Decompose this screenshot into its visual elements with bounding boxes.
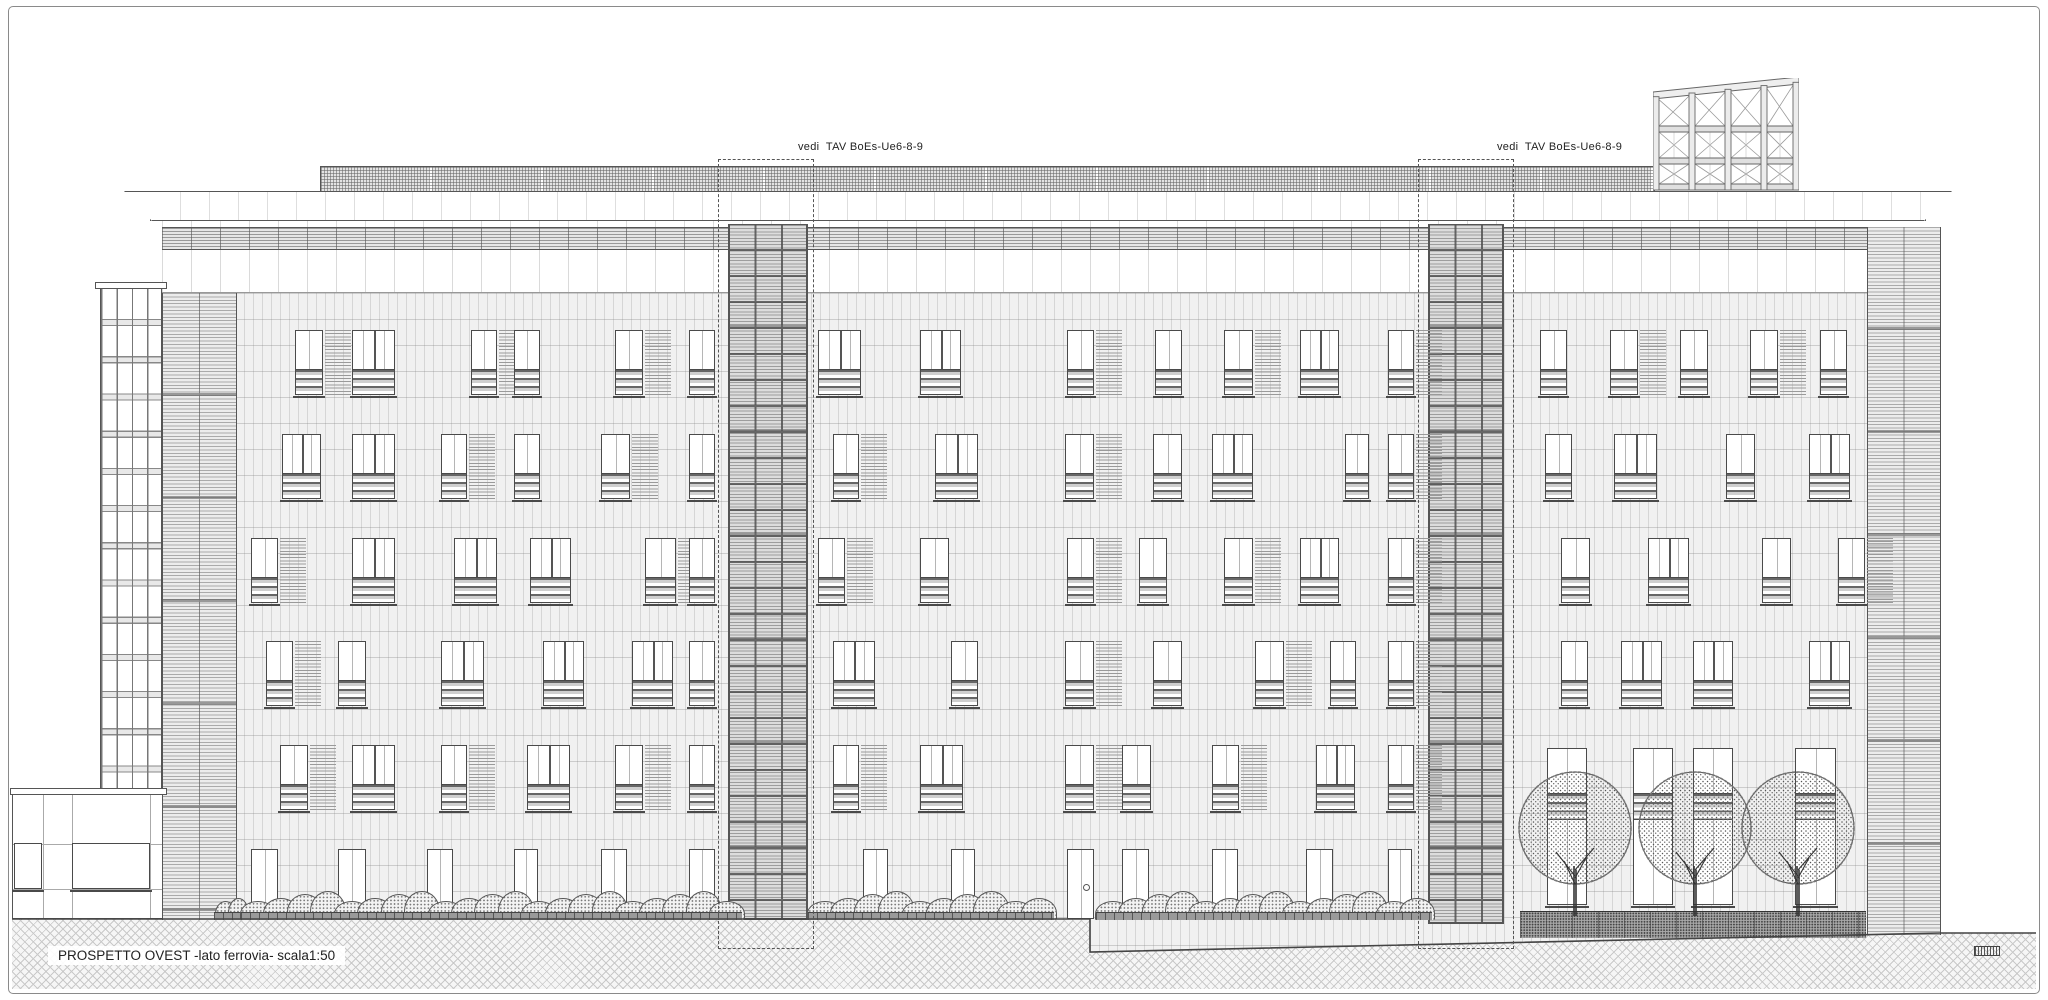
window-side-louver-panel: [1096, 330, 1122, 395]
window: [689, 330, 715, 395]
window-side-louver-panel: [325, 330, 351, 395]
window-mullion: [1226, 746, 1227, 787]
window-mullion: [1329, 539, 1330, 580]
window-louver: [1317, 784, 1354, 809]
window-mullion: [1625, 435, 1626, 476]
window: [1065, 641, 1094, 706]
window-louver: [442, 473, 466, 498]
window-mullion: [374, 746, 376, 787]
window: [352, 538, 395, 603]
window-louver: [1389, 369, 1413, 394]
window-louver: [1681, 369, 1707, 394]
window: [1762, 538, 1791, 603]
window-mullion: [484, 331, 485, 372]
window-louver: [819, 369, 860, 394]
window-louver: [442, 680, 483, 705]
window-mullion: [1401, 435, 1402, 476]
window: [1122, 745, 1151, 810]
window-mullion: [1830, 435, 1832, 476]
window: [689, 745, 715, 810]
window: [1820, 330, 1847, 395]
window-mullion: [832, 539, 833, 580]
window-louver: [616, 369, 642, 394]
window: [645, 538, 676, 603]
window: [1153, 641, 1182, 706]
roof-fascia-left-tip: [124, 191, 152, 221]
window-mullion: [473, 642, 474, 683]
window-louver: [1389, 680, 1413, 705]
window-side-louver-panel: [1286, 641, 1312, 706]
rooftop-glazed-structure: [1653, 78, 1799, 192]
window: [833, 641, 875, 706]
window-mullion: [662, 642, 663, 683]
window-mullion: [352, 642, 353, 683]
left-corner-louver-strip: [162, 293, 237, 920]
window-mullion: [1401, 642, 1402, 683]
window-mullion: [850, 331, 851, 372]
window-side-louver-panel: [645, 330, 671, 395]
window: [935, 434, 978, 499]
window-mullion: [1242, 435, 1243, 476]
window-mullion: [629, 331, 630, 372]
window-louver: [544, 680, 583, 705]
window: [1388, 330, 1414, 395]
window-mullion: [844, 642, 845, 683]
window-louver: [1751, 369, 1777, 394]
window-louver: [646, 577, 675, 602]
window-mullion: [549, 746, 551, 787]
window: [1300, 330, 1339, 395]
window-mullion: [1834, 331, 1835, 372]
tree: [1510, 758, 1640, 918]
window-mullion: [363, 435, 364, 476]
window-mullion: [265, 539, 266, 580]
window-mullion: [1168, 642, 1169, 683]
window-side-louver-panel: [1241, 745, 1267, 810]
window-mullion: [643, 642, 644, 683]
window-louver: [1213, 473, 1252, 498]
window: [266, 641, 293, 706]
window-side-louver-panel: [1867, 538, 1893, 603]
window-mullion: [1741, 435, 1742, 476]
window-louver: [515, 369, 539, 394]
window: [1224, 330, 1253, 395]
door-mullion: [1081, 850, 1082, 918]
window-louver: [1839, 577, 1864, 602]
shrub-planter-strip: [808, 912, 1054, 920]
window-mullion: [1723, 642, 1724, 683]
window-mullion: [702, 331, 703, 372]
window-side-louver-panel: [1255, 330, 1281, 395]
window-louver: [1763, 577, 1790, 602]
window-louver: [1821, 369, 1846, 394]
window: [471, 330, 497, 395]
window-mullion: [1764, 331, 1765, 372]
window: [1750, 330, 1778, 395]
window-louver: [1622, 680, 1661, 705]
window-mullion: [931, 746, 932, 787]
window-mullion: [702, 746, 703, 787]
window-mullion: [1401, 746, 1402, 787]
window-mullion: [1713, 642, 1715, 683]
window: [1067, 330, 1094, 395]
window-louver: [1068, 577, 1093, 602]
window: [1139, 538, 1167, 603]
low-building-window: [72, 843, 150, 889]
window-side-louver-panel: [861, 745, 887, 810]
window: [352, 330, 395, 395]
window-mullion: [702, 642, 703, 683]
window-louver: [834, 784, 858, 809]
window: [441, 745, 467, 810]
window-mullion: [309, 331, 310, 372]
window-louver: [1256, 680, 1283, 705]
window-louver: [921, 369, 960, 394]
window-mullion: [864, 642, 865, 683]
window-mullion: [1852, 539, 1853, 580]
window-mullion: [454, 746, 455, 787]
window-mullion: [280, 642, 281, 683]
window-louver: [819, 577, 844, 602]
window-mullion: [1137, 746, 1138, 787]
window-louver: [1154, 680, 1181, 705]
window-mullion: [1659, 539, 1660, 580]
window-mullion: [965, 642, 966, 683]
window: [689, 538, 715, 603]
window-mullion: [559, 746, 560, 787]
window-louver: [690, 473, 714, 498]
window-mullion: [1336, 746, 1338, 787]
window-mullion: [1168, 435, 1169, 476]
window-louver: [602, 473, 629, 498]
window-mullion: [554, 642, 555, 683]
window-louver: [1810, 680, 1849, 705]
window: [1330, 641, 1356, 706]
window-mullion: [527, 435, 528, 476]
window-mullion: [463, 642, 465, 683]
window-mullion: [829, 331, 830, 372]
window-mullion: [957, 435, 959, 476]
window-mullion: [454, 435, 455, 476]
window-louver: [1225, 369, 1252, 394]
window: [1809, 641, 1850, 706]
window-louver: [1546, 473, 1571, 498]
window-mullion: [1678, 539, 1679, 580]
roof-fascia-right-tip: [1924, 191, 1952, 221]
window-louver: [1389, 784, 1413, 809]
detail-reference-label-right: vedi TAV BoEs-Ue6-8-9: [1497, 141, 1622, 153]
window-mullion: [541, 539, 542, 580]
window: [352, 434, 395, 499]
window-mullion: [1651, 642, 1652, 683]
window-louver: [633, 680, 672, 705]
window-louver: [267, 680, 292, 705]
window: [1155, 330, 1182, 395]
window-louver: [1389, 577, 1413, 602]
detail-reference-box: [1418, 159, 1514, 949]
window-mullion: [292, 435, 293, 476]
window-louver: [1694, 680, 1732, 705]
window-louver: [1346, 473, 1368, 498]
window: [282, 434, 321, 499]
low-building-window: [14, 843, 42, 889]
window-louver: [834, 680, 874, 705]
window-mullion: [1820, 642, 1821, 683]
window-louver: [690, 577, 714, 602]
window-louver: [1066, 473, 1093, 498]
window: [689, 641, 715, 706]
window-mullion: [538, 746, 539, 787]
window-louver: [353, 577, 394, 602]
window: [1388, 745, 1414, 810]
window-mullion: [1310, 331, 1311, 372]
window-side-louver-panel: [1096, 745, 1122, 810]
window: [920, 745, 963, 810]
window: [1621, 641, 1662, 706]
glazed-entrance-door: [1067, 849, 1094, 919]
window: [1838, 538, 1865, 603]
window-louver: [252, 577, 277, 602]
low-building-roof-slab: [10, 788, 167, 795]
window-mullion: [1270, 642, 1271, 683]
window-mullion: [311, 435, 312, 476]
window-mullion: [374, 435, 376, 476]
window: [441, 434, 467, 499]
window-mullion: [1345, 746, 1346, 787]
window-side-louver-panel: [295, 641, 321, 706]
window: [615, 745, 643, 810]
window-mullion: [935, 539, 936, 580]
window-louver: [1611, 369, 1637, 394]
window: [1561, 538, 1590, 603]
window-louver: [1123, 784, 1150, 809]
window: [441, 641, 484, 706]
window-mullion: [946, 435, 947, 476]
window: [1255, 641, 1284, 706]
window-louver: [1066, 784, 1093, 809]
window-louver: [1562, 680, 1587, 705]
window-mullion: [846, 746, 847, 787]
window: [1540, 330, 1567, 395]
window-mullion: [384, 435, 385, 476]
window: [833, 745, 859, 810]
window-mullion: [1839, 435, 1840, 476]
window: [1212, 434, 1253, 499]
window-louver: [353, 369, 394, 394]
window-mullion: [1357, 435, 1358, 476]
window: [1300, 538, 1339, 603]
detail-reference-label-left: vedi TAV BoEs-Ue6-8-9: [798, 141, 923, 153]
window-mullion: [942, 746, 944, 787]
window-mullion: [527, 331, 528, 372]
window-mullion: [363, 539, 364, 580]
window: [1726, 434, 1755, 499]
window-louver: [921, 577, 948, 602]
window: [527, 745, 570, 810]
window: [338, 641, 366, 706]
window: [1065, 434, 1094, 499]
elevation-drawing-sheet: vedi TAV BoEs-Ue6-8-9 vedi TAV BoEs-Ue6-…: [0, 0, 2048, 1000]
window-side-louver-panel: [310, 745, 336, 810]
window-mullion: [1624, 331, 1625, 372]
window: [920, 330, 961, 395]
window-mullion: [1169, 331, 1170, 372]
window-mullion: [967, 435, 968, 476]
window: [543, 641, 584, 706]
window-louver: [1727, 473, 1754, 498]
window-mullion: [840, 331, 842, 372]
window-louver: [1140, 577, 1166, 602]
shrub-planter-strip: [1096, 912, 1432, 920]
window-mullion: [1223, 435, 1224, 476]
window-louver: [690, 369, 714, 394]
window-mullion: [384, 746, 385, 787]
window-mullion: [1080, 435, 1081, 476]
window: [1316, 745, 1355, 810]
window-mullion: [1694, 331, 1695, 372]
window-side-louver-panel: [861, 434, 887, 499]
window-mullion: [465, 539, 466, 580]
roof-fascia: [150, 191, 1926, 221]
window: [251, 538, 278, 603]
window-side-louver-panel: [1640, 330, 1666, 395]
window-mullion: [1401, 331, 1402, 372]
window-mullion: [1830, 642, 1832, 683]
tree: [1733, 758, 1863, 918]
window: [951, 641, 978, 706]
section-marker-block: [1974, 946, 2000, 956]
window: [1212, 745, 1239, 810]
window-mullion: [1554, 331, 1555, 372]
window-mullion: [1239, 539, 1240, 580]
window-side-louver-panel: [469, 434, 495, 499]
window-mullion: [573, 642, 574, 683]
window-mullion: [1153, 539, 1154, 580]
window-louver: [1615, 473, 1656, 498]
window-louver: [472, 369, 496, 394]
window-mullion: [1081, 539, 1082, 580]
window-louver: [1810, 473, 1849, 498]
window-side-louver-panel: [280, 538, 306, 603]
window: [1388, 434, 1414, 499]
window-louver: [339, 680, 365, 705]
window-mullion: [1401, 539, 1402, 580]
window-mullion: [1839, 642, 1840, 683]
window-louver: [296, 369, 322, 394]
window: [632, 641, 673, 706]
window-mullion: [374, 539, 376, 580]
window: [1693, 641, 1733, 706]
window: [601, 434, 630, 499]
window-louver: [531, 577, 570, 602]
window: [1388, 538, 1414, 603]
window-mullion: [1777, 539, 1778, 580]
window-mullion: [1320, 539, 1322, 580]
window: [1614, 434, 1657, 499]
window: [1153, 434, 1182, 499]
window-mullion: [653, 642, 655, 683]
glazed-stair-tower: [100, 288, 162, 790]
window-mullion: [363, 746, 364, 787]
window: [1067, 538, 1094, 603]
window-mullion: [1575, 642, 1576, 683]
window: [530, 538, 571, 603]
window-mullion: [384, 539, 385, 580]
window: [1809, 434, 1850, 499]
window-mullion: [952, 746, 953, 787]
window: [920, 538, 949, 603]
window: [615, 330, 643, 395]
window-mullion: [302, 435, 304, 476]
window-louver: [1154, 473, 1181, 498]
window: [818, 330, 861, 395]
window-mullion: [1820, 435, 1821, 476]
window-mullion: [846, 435, 847, 476]
window: [1065, 745, 1094, 810]
window-mullion: [1632, 642, 1633, 683]
window: [818, 538, 845, 603]
window-mullion: [564, 642, 566, 683]
window-louver: [1066, 680, 1093, 705]
window-mullion: [1233, 435, 1235, 476]
window-mullion: [702, 539, 703, 580]
window-louver: [690, 784, 714, 809]
detail-reference-box: [718, 159, 814, 949]
window: [295, 330, 323, 395]
window: [1680, 330, 1708, 395]
window-side-louver-panel: [469, 745, 495, 810]
top-louver-band: [162, 227, 1867, 250]
window-mullion: [1559, 435, 1560, 476]
window-louver: [1225, 577, 1252, 602]
window-mullion: [476, 539, 478, 580]
window: [1224, 538, 1253, 603]
window: [1610, 330, 1638, 395]
window-mullion: [1636, 435, 1638, 476]
window-mullion: [1310, 539, 1311, 580]
window-mullion: [363, 331, 364, 372]
window: [689, 434, 715, 499]
window-side-louver-panel: [847, 538, 873, 603]
window-side-louver-panel: [1096, 434, 1122, 499]
window-mullion: [374, 331, 376, 372]
window-mullion: [931, 331, 932, 372]
window-mullion: [560, 539, 561, 580]
window: [280, 745, 308, 810]
window: [1648, 538, 1689, 603]
window-mullion: [661, 539, 662, 580]
window-louver: [1156, 369, 1181, 394]
window-mullion: [616, 435, 617, 476]
window-louver: [353, 784, 394, 809]
window-louver: [952, 680, 977, 705]
window-louver: [442, 784, 466, 809]
window-side-louver-panel: [632, 434, 658, 499]
window-side-louver-panel: [1255, 538, 1281, 603]
window-louver: [1213, 784, 1238, 809]
window: [352, 745, 395, 810]
window: [1345, 434, 1369, 499]
window-louver: [1389, 473, 1413, 498]
window-mullion: [1320, 331, 1322, 372]
window-louver: [1562, 577, 1589, 602]
window-louver: [1331, 680, 1355, 705]
window-mullion: [551, 539, 553, 580]
window-mullion: [941, 331, 943, 372]
window-louver: [1068, 369, 1093, 394]
shrub-planter-strip: [241, 912, 742, 920]
door-handle: [1083, 884, 1090, 891]
